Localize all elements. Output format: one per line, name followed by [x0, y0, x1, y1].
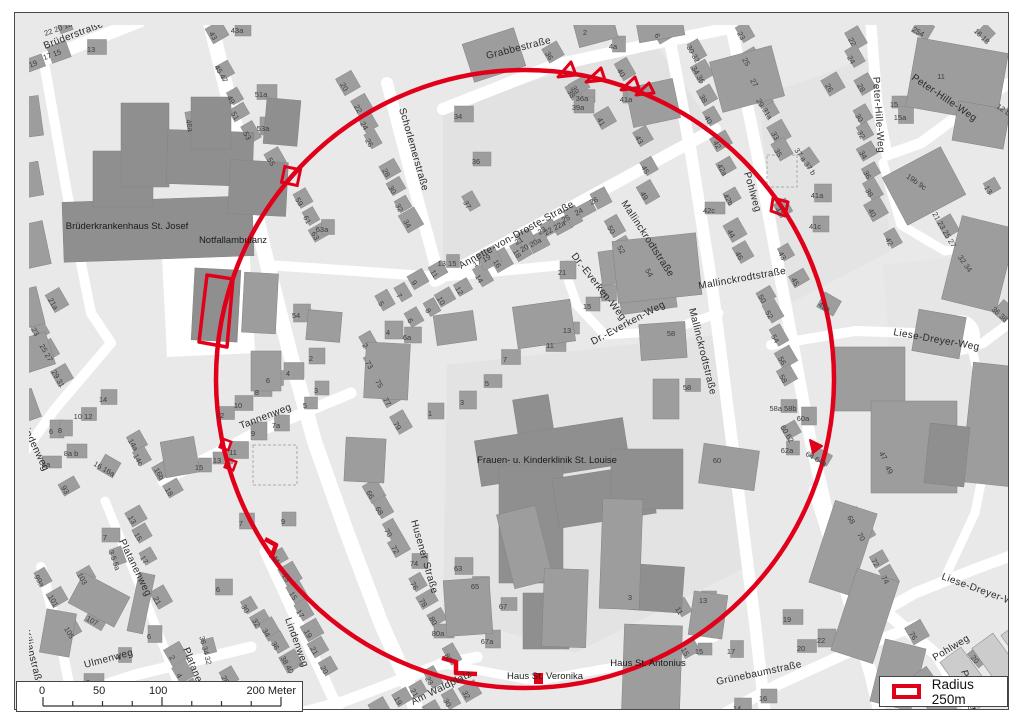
house-number: 6 — [147, 632, 151, 641]
house-number: 10 — [234, 401, 242, 410]
map-canvas: 22 20 1817 151321 194343a45 47495151a535… — [15, 13, 1009, 710]
house-number: 58a 58b — [769, 404, 796, 413]
house-number: 5 — [303, 401, 307, 410]
house-number: 14 — [99, 395, 107, 404]
house-number: 6 — [266, 376, 270, 385]
place-label: Brüderkrankenhaus St. Josef — [66, 221, 189, 232]
house-number: 15 — [195, 463, 203, 472]
house-number: 9 — [281, 517, 285, 526]
house-number: 15 — [890, 100, 898, 109]
house-number: 11 — [546, 341, 554, 350]
house-number: 8 — [255, 388, 259, 397]
house-number: 4 — [286, 369, 290, 378]
house-number: 62a — [781, 446, 794, 455]
house-number: 4 — [386, 328, 390, 337]
house-number: 5 — [485, 379, 489, 388]
house-number: 67 — [499, 602, 507, 611]
house-number: 41a — [811, 191, 824, 200]
house-number: 34 — [454, 112, 462, 121]
house-number: 7 — [103, 533, 107, 542]
house-number: 9 — [251, 429, 255, 438]
house-number: 60 — [713, 456, 721, 465]
house-number: 21 — [558, 268, 566, 277]
map-layers: 22 20 1817 151321 194343a45 47495151a535… — [15, 13, 1009, 710]
house-number: 36a — [576, 94, 589, 103]
house-number: 13 — [213, 456, 221, 465]
house-number: 54 — [292, 311, 300, 320]
house-number: 12 — [216, 411, 224, 420]
house-number: 15 — [695, 647, 703, 656]
house-number: 8 — [58, 426, 62, 435]
house-number: 4a — [609, 42, 618, 51]
house-number: 39a — [572, 103, 585, 112]
house-number: 1 — [428, 409, 432, 418]
house-number: 8a b — [64, 449, 79, 458]
house-number: 14 — [733, 704, 741, 710]
house-number: 15 — [583, 302, 591, 311]
house-number: 80a — [432, 629, 445, 638]
house-number: 13 — [563, 326, 571, 335]
house-number: 22 — [817, 636, 825, 645]
house-number: 2 — [309, 354, 313, 363]
house-number: 58 — [667, 329, 675, 338]
map-page: 22 20 1817 151321 194343a45 47495151a535… — [0, 0, 1024, 724]
house-number: 6 — [49, 427, 53, 436]
house-number: 42c — [703, 206, 715, 215]
place-label: Notfallambulanz — [199, 235, 267, 246]
house-number: 43a — [231, 26, 244, 35]
house-number: 11 — [937, 72, 945, 81]
house-number: 11 — [229, 448, 237, 457]
place-label: Haus St. Antonius — [610, 658, 686, 669]
house-number: 19 — [783, 615, 791, 624]
house-number: 7a — [272, 421, 281, 430]
place-label: Frauen- u. Kinderklinik St. Louise — [477, 455, 617, 466]
scale-bar: 0 50 100 200 Meter — [16, 681, 303, 712]
house-number: 36 — [472, 157, 480, 166]
house-number: 3 — [628, 593, 632, 602]
house-number: 63 — [454, 564, 462, 573]
radius-swatch-icon — [892, 684, 921, 699]
place-label: Haus St. Veronika — [507, 671, 584, 682]
house-number: 7 — [503, 355, 507, 364]
house-number: 3 — [314, 386, 318, 395]
legend: Radius 250m — [879, 676, 1008, 707]
house-number: 10 12 — [74, 412, 93, 421]
legend-label: Radius 250m — [932, 677, 1007, 707]
house-number: 53a — [257, 124, 270, 133]
house-number: 60a — [797, 414, 810, 423]
house-number: 15a — [894, 113, 907, 122]
house-number: 74 — [410, 559, 418, 568]
house-number: 63a — [316, 225, 329, 234]
scale-ruler — [17, 682, 301, 710]
house-number: 17 — [727, 647, 735, 656]
house-number: 28 — [423, 709, 435, 710]
house-number: 41a — [620, 95, 633, 104]
house-number: 6 — [216, 585, 220, 594]
house-number: 2 — [583, 28, 587, 37]
house-number: 51a — [255, 90, 268, 99]
house-number: 7 — [239, 519, 243, 528]
house-number: 16 — [759, 694, 767, 703]
house-number: 58 — [683, 383, 691, 392]
house-number: 13 — [699, 596, 707, 605]
map-frame: 22 20 1817 151321 194343a45 47495151a535… — [14, 12, 1009, 710]
house-number: 13 — [87, 45, 95, 54]
house-number: 20 — [797, 644, 805, 653]
house-number: 67a — [481, 637, 494, 646]
house-number: 3 — [460, 398, 464, 407]
house-number: 13 15 — [438, 259, 457, 268]
house-number: 65 — [471, 582, 479, 591]
house-number: 6a — [403, 333, 412, 342]
house-number: 41c — [809, 222, 821, 231]
